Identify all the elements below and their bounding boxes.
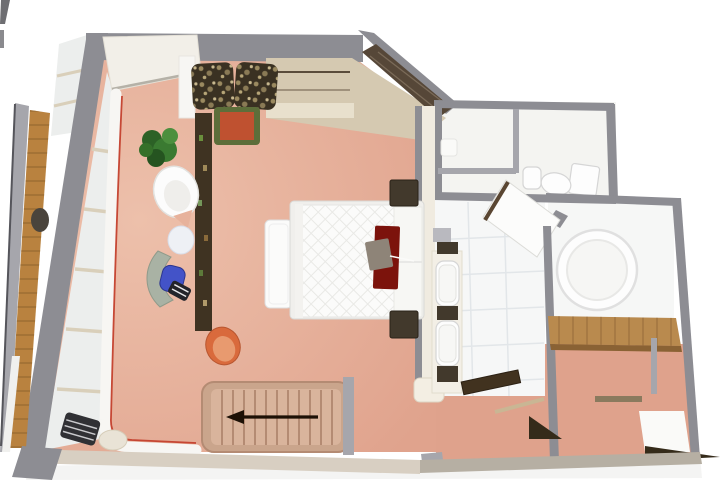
floor-plan-render (0, 0, 726, 488)
hallway-closet-wall (651, 338, 657, 394)
leopard-rug-left (191, 62, 235, 110)
bookshelf-divider (195, 113, 212, 331)
storage-fixture (441, 139, 457, 156)
staircase (202, 377, 354, 455)
stair-landing (639, 411, 690, 452)
stool (168, 226, 194, 254)
floor-plan-page (0, 0, 726, 488)
vanity-wood-mid (437, 306, 458, 320)
railing-top-sliver-2 (0, 30, 4, 48)
duvet-fold (295, 204, 303, 318)
leopard-rug-right (233, 62, 278, 111)
stair-post-wall (343, 377, 354, 455)
hallway-shelf (595, 396, 642, 402)
balcony-table (31, 208, 49, 232)
wc-sink (523, 167, 541, 189)
nightstand-top (390, 180, 418, 206)
vanity-wood-bottom (437, 366, 458, 382)
washbasin-1-inner (439, 265, 456, 302)
rooms-divider-wall (513, 109, 519, 173)
pouf (99, 430, 127, 450)
round-bathtub-basin (567, 240, 627, 300)
planter-pot (220, 112, 254, 140)
washbasin-2-inner (439, 325, 456, 362)
storage-room-wall (438, 168, 516, 174)
vanity-wood-top (437, 242, 458, 254)
wardrobe-front (266, 103, 354, 118)
breakfast-tray (365, 238, 394, 271)
shower-niche-wall (433, 228, 451, 242)
nightstand-bottom (390, 311, 418, 338)
tub-wood-deck-planks (548, 316, 681, 346)
